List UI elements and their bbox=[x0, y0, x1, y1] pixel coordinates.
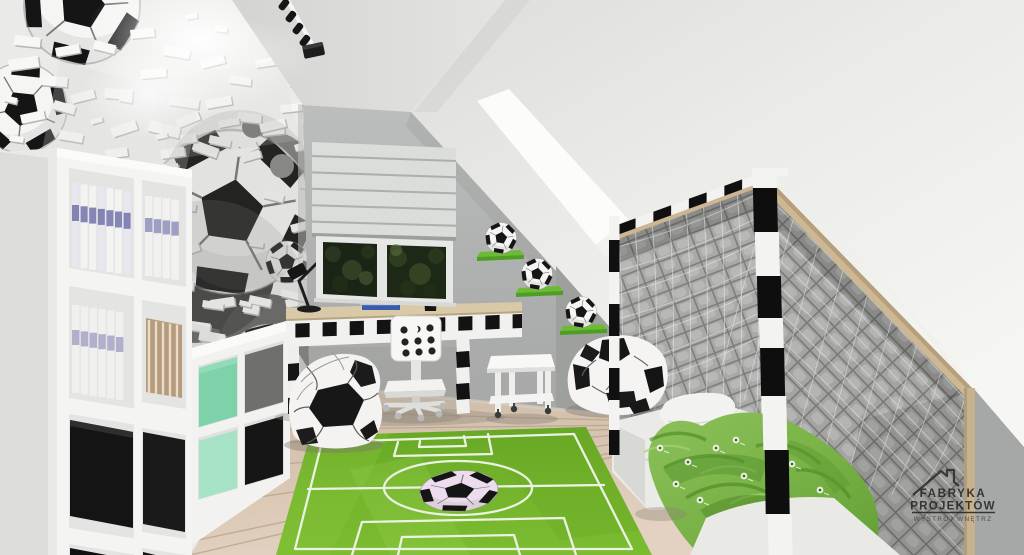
svg-text:PROJEKTÓW: PROJEKTÓW bbox=[910, 500, 996, 513]
svg-text:FABRYKA: FABRYKA bbox=[920, 487, 987, 500]
svg-text:WYSTRÓJ WNĘTRZ: WYSTRÓJ WNĘTRZ bbox=[914, 514, 993, 523]
